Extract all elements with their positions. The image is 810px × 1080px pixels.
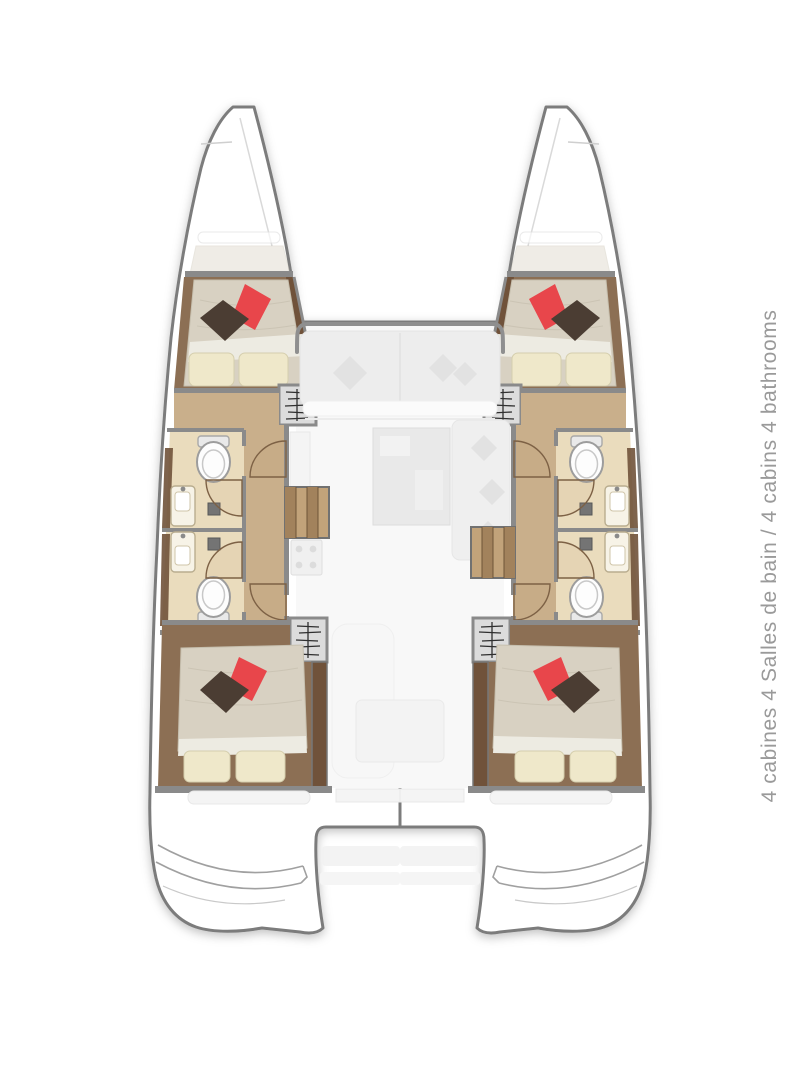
catamaran-floorplan: 4 cabines 4 Salles de bain / 4 cabins 4 … xyxy=(0,0,810,1080)
hull-stairs-starboard xyxy=(471,527,515,578)
layout-caption: 4 cabines 4 Salles de bain / 4 cabins 4 … xyxy=(758,310,781,803)
hull-stairs-port xyxy=(285,487,329,538)
